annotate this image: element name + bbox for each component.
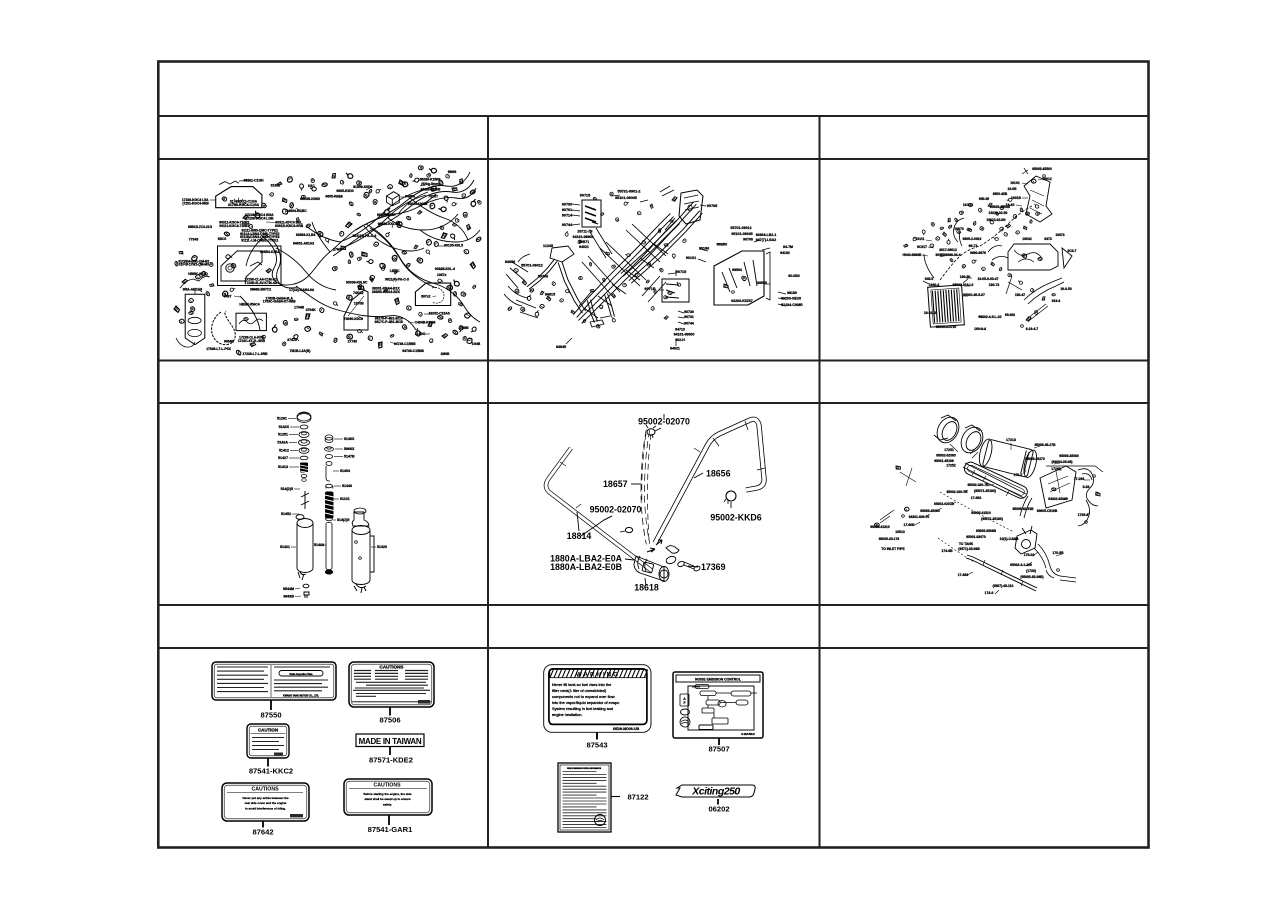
svg-text:2M9B: 2M9B xyxy=(441,352,450,356)
svg-text:HBBK-9H1D: HBBK-9H1D xyxy=(188,272,208,276)
svg-text:948PA: 948PA xyxy=(405,195,416,199)
svg-text:55701-09012: 55701-09012 xyxy=(730,226,751,230)
svg-text:95002-45-5-07: 95002-45-5-07 xyxy=(963,293,985,297)
svg-text:87550: 87550 xyxy=(260,711,281,720)
svg-text:7016T: 7016T xyxy=(428,194,439,198)
svg-text:9605-K0L8T: 9605-K0L8T xyxy=(377,213,397,217)
svg-text:1705-6: 1705-6 xyxy=(1078,513,1089,517)
svg-text:9605-2-0616: 9605-2-0616 xyxy=(963,237,982,241)
svg-text:1901B: 1901B xyxy=(1011,196,1022,200)
svg-text:9843B: 9843B xyxy=(283,595,294,599)
svg-text:90714: 90714 xyxy=(562,214,573,218)
svg-text:System resulting in fuel leaki: System resulting in fuel leaking and xyxy=(552,706,613,711)
svg-text:KWANG YANG MOTOR CO., LTD.: KWANG YANG MOTOR CO., LTD. xyxy=(283,695,319,698)
svg-text:190-47: 190-47 xyxy=(1015,293,1025,297)
svg-text:(7231-KGC4-9RB: (7231-KGC4-9RB xyxy=(182,202,209,206)
svg-text:51420: 51420 xyxy=(377,545,387,549)
svg-text:94021: 94021 xyxy=(579,245,589,249)
svg-text:947(7)-LBA2: 947(7)-LBA2 xyxy=(756,238,776,242)
svg-text:55701-09012: 55701-09012 xyxy=(521,264,543,268)
svg-text:19032: 19032 xyxy=(1022,237,1032,241)
svg-text:19-222: 19-222 xyxy=(963,203,973,207)
svg-text:26711-7B: 26711-7B xyxy=(577,230,593,234)
svg-text:19220-02-50: 19220-02-50 xyxy=(989,211,1008,215)
svg-text:51404: 51404 xyxy=(340,469,350,473)
svg-text:WARNING: WARNING xyxy=(576,671,620,678)
svg-text:1763C-GAB4-KT-9RB: 1763C-GAB4-KT-9RB xyxy=(263,300,297,304)
svg-text:946-5: 946-5 xyxy=(925,277,934,281)
svg-text:C404B-K0M8: C404B-K0M8 xyxy=(415,321,436,325)
svg-text:TO TANK: TO TANK xyxy=(959,542,974,546)
svg-text:1370B: 1370B xyxy=(354,301,365,305)
svg-text:to avoid interference of ridin: to avoid interference of riding. xyxy=(245,806,286,810)
svg-text:Never put any article between: Never put any article between the xyxy=(242,796,288,800)
svg-text:51421: 51421 xyxy=(280,545,290,549)
svg-text:94738-C15BB: 94738-C15BB xyxy=(394,342,416,346)
svg-text:90309-K0L8C: 90309-K0L8C xyxy=(346,280,368,284)
svg-text:1704B: 1704B xyxy=(294,306,305,310)
svg-text:5966X: 5966X xyxy=(344,447,355,451)
svg-text:7M1B-L3A(B): 7M1B-L3A(B) xyxy=(290,349,311,353)
svg-text:174-6B: 174-6B xyxy=(941,549,953,553)
svg-text:90705: 90705 xyxy=(707,204,718,208)
svg-text:95001-63070: 95001-63070 xyxy=(966,535,986,539)
svg-text:5142X: 5142X xyxy=(279,425,290,429)
svg-text:5147B: 5147B xyxy=(344,455,355,459)
svg-text:96-73: 96-73 xyxy=(969,244,978,248)
svg-text:NOISE EMISSION CONTROL: NOISE EMISSION CONTROL xyxy=(695,677,741,681)
svg-text:19111: 19111 xyxy=(915,237,924,241)
svg-text:84601-A61A3: 84601-A61A3 xyxy=(293,242,314,246)
svg-text:87507: 87507 xyxy=(708,745,729,754)
svg-text:17369: 17369 xyxy=(701,562,726,572)
svg-text:514(2)5: 514(2)5 xyxy=(281,487,293,491)
svg-text:90605-C510B: 90605-C510B xyxy=(1037,509,1058,513)
svg-text:90701: 90701 xyxy=(562,208,572,212)
svg-text:19-01-B: 19-01-B xyxy=(924,311,937,315)
svg-text:9690-6876: 9690-6876 xyxy=(970,251,986,255)
svg-text:Never fill tank so fuel rises: Never fill tank so fuel rises into the xyxy=(552,682,611,687)
svg-text:rear side cover and the engine: rear side cover and the engine xyxy=(245,801,287,805)
svg-text:3174B-KGC4-C1GA: 3174B-KGC4-C1GA xyxy=(228,203,260,207)
svg-text:51443: 51443 xyxy=(342,484,352,488)
svg-text:51452: 51452 xyxy=(281,512,291,516)
svg-text:F: F xyxy=(684,701,686,705)
svg-text:87541-KKC2: 87541-KKC2 xyxy=(249,767,293,776)
svg-text:9111L-LM-QMB2-TYPE1: 9111L-LM-QMB2-TYPE1 xyxy=(241,238,278,242)
svg-text:1723C-4T-2L-9RB: 1723C-4T-2L-9RB xyxy=(238,339,266,343)
svg-text:19-05-0-90-47: 19-05-0-90-47 xyxy=(978,277,999,281)
svg-text:90730: 90730 xyxy=(562,203,572,207)
svg-text:Brake Inspection Plate: Brake Inspection Plate xyxy=(290,673,314,676)
svg-text:5142A: 5142A xyxy=(277,441,288,445)
svg-text:51281: 51281 xyxy=(277,417,287,421)
svg-text:87122: 87122 xyxy=(627,793,648,802)
svg-text:94162: 94162 xyxy=(780,251,790,255)
svg-text:06202: 06202 xyxy=(708,805,729,814)
svg-text:17(23)-GAB4-9A: 17(23)-GAB4-9A xyxy=(289,288,315,292)
svg-text:397x2: 397x2 xyxy=(421,295,431,299)
svg-text:190-50: 190-50 xyxy=(960,275,971,279)
svg-text:743T: 743T xyxy=(224,295,233,299)
svg-text:95101-09045: 95101-09045 xyxy=(615,196,637,200)
svg-text:9BC5: 9BC5 xyxy=(218,237,227,241)
svg-text:1880A-LBA2-E0B: 1880A-LBA2-E0B xyxy=(550,562,622,572)
svg-text:94021: 94021 xyxy=(670,347,680,351)
svg-text:51234-CHMR: 51234-CHMR xyxy=(781,303,803,307)
svg-text:636B4-K1BA: 636B4-K1BA xyxy=(260,250,280,254)
svg-text:17-603: 17-603 xyxy=(971,496,982,500)
svg-text:(1730): (1730) xyxy=(1026,569,1036,573)
svg-text:9081B-KBC4-9RB: 9081B-KBC4-9RB xyxy=(275,224,304,228)
svg-text:374Z0: 374Z0 xyxy=(287,338,297,342)
svg-text:CAUTIONS: CAUTIONS xyxy=(373,783,401,789)
svg-text:87642: 87642 xyxy=(252,828,273,837)
svg-text:65002-4-1-200: 65002-4-1-200 xyxy=(1010,563,1032,567)
svg-text:87506: 87506 xyxy=(379,716,400,725)
svg-text:51101: 51101 xyxy=(340,497,350,501)
svg-text:51413: 51413 xyxy=(278,465,288,469)
svg-text:CAUTIONS: CAUTIONS xyxy=(251,787,279,793)
svg-text:9C617: 9C617 xyxy=(917,245,927,249)
svg-text:65002-020-7B: 65002-020-7B xyxy=(946,490,968,494)
svg-text:9811(4)-PA-C-3: 9811(4)-PA-C-3 xyxy=(385,278,409,282)
svg-text:9-19A7BL6: 9-19A7BL6 xyxy=(741,732,755,736)
svg-text:(93004-35-08): (93004-35-08) xyxy=(1052,460,1073,464)
svg-text:CAUTION: CAUTION xyxy=(258,728,278,733)
svg-text:90730: 90730 xyxy=(684,310,694,314)
svg-text:84856: 84856 xyxy=(505,260,515,264)
svg-text:919-4: 919-4 xyxy=(1052,299,1061,303)
svg-text:9011-09888-04-4: 9011-09888-04-4 xyxy=(935,253,960,257)
svg-text:87541-GAR1: 87541-GAR1 xyxy=(368,825,414,834)
svg-text:GE29-MD06-UB: GE29-MD06-UB xyxy=(613,727,640,731)
svg-text:95005-45080: 95005-45080 xyxy=(1059,454,1079,458)
svg-text:87571-KDE2: 87571-KDE2 xyxy=(369,756,413,765)
svg-text:90706: 90706 xyxy=(743,238,753,242)
svg-text:95005-45-27B: 95005-45-27B xyxy=(1034,443,1056,447)
svg-text:51427: 51427 xyxy=(278,456,288,460)
svg-text:95002-020-7B: 95002-020-7B xyxy=(967,483,989,487)
svg-text:94101-08908: 94101-08908 xyxy=(573,235,594,239)
svg-text:94301-630-70: 94301-630-70 xyxy=(909,515,930,519)
svg-text:9071B: 9071B xyxy=(644,287,655,291)
svg-text:31862: 31862 xyxy=(271,183,281,187)
svg-text:3617C-P-4B1-BCB: 3617C-P-4B1-BCB xyxy=(374,320,403,324)
svg-text:27743: 27743 xyxy=(348,339,358,343)
svg-text:34904-KCBC: 34904-KCBC xyxy=(286,209,307,213)
svg-text:90715: 90715 xyxy=(580,194,591,198)
svg-text:95002-02080: 95002-02080 xyxy=(936,454,956,458)
svg-text:94738-C15M8: 94738-C15M8 xyxy=(402,349,424,353)
svg-text:9-19-4-7: 9-19-4-7 xyxy=(1026,327,1039,331)
svg-text:17-60B: 17-60B xyxy=(903,523,915,527)
svg-text:95005-41510: 95005-41510 xyxy=(971,511,991,515)
svg-text:174-0: 174-0 xyxy=(985,591,994,595)
svg-text:9473: 9473 xyxy=(1044,237,1052,241)
svg-text:172-2: 172-2 xyxy=(1014,473,1023,477)
svg-text:55731-0901-2: 55731-0901-2 xyxy=(618,190,641,194)
svg-text:17-264: 17-264 xyxy=(1074,477,1085,481)
svg-text:98180: 98180 xyxy=(787,291,797,295)
svg-text:190-73: 190-73 xyxy=(989,283,1000,287)
svg-text:8544M: 8544M xyxy=(283,587,294,591)
svg-text:9M09: 9M09 xyxy=(448,170,457,174)
svg-text:950-05: 950-05 xyxy=(979,197,989,201)
svg-text:TO INLET PIPE: TO INLET PIPE xyxy=(881,547,905,551)
svg-text:Before starting the engine, th: Before starting the engine, the side xyxy=(364,792,412,796)
svg-text:9664B: 9664B xyxy=(224,340,235,344)
svg-text:19070: 19070 xyxy=(954,227,964,231)
svg-text:19222-02-B0: 19222-02-B0 xyxy=(986,218,1005,222)
svg-text:90731: 90731 xyxy=(684,315,694,319)
svg-text:170-5B: 170-5B xyxy=(1052,551,1064,555)
svg-text:84845: 84845 xyxy=(556,345,566,349)
svg-text:(95071-35180): (95071-35180) xyxy=(981,517,1003,521)
svg-text:17-683: 17-683 xyxy=(958,573,969,577)
svg-text:95002-019-L0: 95002-019-L0 xyxy=(953,283,974,287)
svg-text:77343: 77343 xyxy=(189,238,199,242)
svg-text:90111-KGC4-710B1: 90111-KGC4-710B1 xyxy=(219,224,249,228)
svg-text:95101-09045: 95101-09045 xyxy=(731,232,752,236)
svg-text:18657: 18657 xyxy=(603,479,628,489)
svg-text:95005-3508B: 95005-3508B xyxy=(976,529,997,533)
svg-text:514(2)5: 514(2)5 xyxy=(337,518,349,522)
svg-text:51412: 51412 xyxy=(279,449,289,453)
svg-text:74KC2: 74KC2 xyxy=(353,291,364,295)
svg-text:84815: 84815 xyxy=(545,293,555,297)
svg-text:84308-1130B: 84308-1130B xyxy=(421,188,441,192)
svg-text:90-0B0: 90-0B0 xyxy=(788,274,800,278)
svg-text:3704K: 3704K xyxy=(306,308,317,312)
svg-text:90101: 90101 xyxy=(686,256,696,260)
svg-text:11245: 11245 xyxy=(543,244,553,248)
svg-text:95005-45270: 95005-45270 xyxy=(1025,457,1045,461)
svg-text:95005-45500: 95005-45500 xyxy=(1032,167,1052,171)
svg-text:190-3-4: 190-3-4 xyxy=(974,327,986,331)
svg-text:902-H: 902-H xyxy=(675,338,685,342)
svg-text:90305-K0L-4: 90305-K0L-4 xyxy=(435,267,455,271)
svg-text:9660B-K0B0: 9660B-K0B0 xyxy=(300,197,320,201)
svg-text:98504: 98504 xyxy=(732,268,742,272)
svg-text:51251: 51251 xyxy=(278,433,288,437)
svg-text:1723B-5LAV-KTM-A3: 1723B-5LAV-KTM-A3 xyxy=(245,281,278,285)
svg-text:safety.: safety. xyxy=(383,802,392,806)
svg-text:components not to expand over: components not to expand over flow xyxy=(552,694,615,699)
svg-text:MADE IN TAIWAN: MADE IN TAIWAN xyxy=(359,737,422,746)
svg-text:90304-LB2-1: 90304-LB2-1 xyxy=(756,233,777,237)
svg-text:18656: 18656 xyxy=(706,469,731,479)
svg-text:filler neck(1 liter of unrestr: filler neck(1 liter of unrestricted) xyxy=(552,688,607,693)
svg-text:95005-4550B: 95005-4550B xyxy=(990,205,1011,209)
svg-text:LE-4C: LE-4C xyxy=(390,269,400,273)
svg-text:1725Z: 1725Z xyxy=(946,464,956,468)
svg-text:18618: 18618 xyxy=(634,583,659,593)
svg-text:19012: 19012 xyxy=(1042,177,1052,181)
svg-text:19073: 19073 xyxy=(1055,233,1064,237)
svg-text:3617-09012: 3617-09012 xyxy=(939,248,957,252)
svg-text:(95071-35180): (95071-35180) xyxy=(974,489,996,493)
svg-text:18814: 18814 xyxy=(567,531,592,541)
svg-text:95005-42-51B: 95005-42-51B xyxy=(1012,507,1034,511)
svg-text:17261: 17261 xyxy=(1051,467,1061,471)
svg-text:96105-10065: 96105-10065 xyxy=(408,202,428,206)
svg-text:9500-45B: 9500-45B xyxy=(993,192,1008,196)
svg-text:94101-06000: 94101-06000 xyxy=(674,333,695,337)
svg-text:95005-35-178: 95005-35-178 xyxy=(879,537,900,541)
svg-text:95001-45108: 95001-45108 xyxy=(934,459,954,463)
svg-text:10513: 10513 xyxy=(895,530,905,534)
svg-text:stand shall be swept up to ens: stand shall be swept up to ensure xyxy=(364,797,410,801)
svg-text:95005-3-5720: 95005-3-5720 xyxy=(936,325,957,329)
svg-text:9RA-AM1U9: 9RA-AM1U9 xyxy=(183,287,203,291)
svg-text:90715: 90715 xyxy=(676,270,687,274)
svg-text:86301-C1GH: 86301-C1GH xyxy=(244,179,265,183)
svg-text:H1C: H1C xyxy=(308,184,315,188)
svg-text:1367x: 1367x xyxy=(437,273,447,277)
svg-text:(9571)-35-08B: (9571)-35-08B xyxy=(958,547,980,551)
svg-text:(9507)-45-110: (9507)-45-110 xyxy=(993,584,1014,588)
svg-text:90105-K0L5: 90105-K0L5 xyxy=(444,243,463,247)
svg-text:87543: 87543 xyxy=(586,741,607,750)
svg-text:HBBK-KHC4: HBBK-KHC4 xyxy=(239,302,259,306)
svg-text:H040-9888B: H040-9888B xyxy=(903,253,922,257)
svg-text:27M6: 27M6 xyxy=(333,247,342,251)
svg-text:(95005-35-08B): (95005-35-08B) xyxy=(1020,575,1043,579)
svg-text:9C6-7: 9C6-7 xyxy=(1068,249,1077,253)
svg-text:50280-K15R8: 50280-K15R8 xyxy=(420,177,441,181)
svg-text:into the vapor/liquid separato: into the vapor/liquid separator of evapo xyxy=(552,700,619,705)
svg-text:95002-02070: 95002-02070 xyxy=(590,505,642,515)
svg-text:98565: 98565 xyxy=(757,281,767,285)
svg-text:90250: 90250 xyxy=(717,243,727,247)
svg-text:95002-KKD6: 95002-KKD6 xyxy=(710,513,761,523)
svg-text:Xciting250: Xciting250 xyxy=(691,786,740,798)
svg-text:98B71: 98B71 xyxy=(579,240,589,244)
svg-text:3830B-KBA4-B2X: 3830B-KBA4-B2X xyxy=(372,290,401,294)
svg-text:2M9B: 2M9B xyxy=(460,326,470,330)
svg-text:19101: 19101 xyxy=(1010,181,1020,185)
svg-text:50706: 50706 xyxy=(538,275,548,279)
svg-text:95005-45080: 95005-45080 xyxy=(920,509,940,513)
svg-text:90744: 90744 xyxy=(562,223,573,227)
svg-text:63564-KLB4: 63564-KLB4 xyxy=(296,233,316,237)
svg-text:96005-41310: 96005-41310 xyxy=(870,525,890,529)
svg-text:5146X: 5146X xyxy=(344,437,355,441)
svg-text:9-33: 9-33 xyxy=(1083,485,1090,489)
svg-text:9811(4)-PA-C-3: 9811(4)-PA-C-3 xyxy=(353,234,377,238)
svg-text:83203-K0Z67: 83203-K0Z67 xyxy=(731,299,752,303)
svg-text:17238-L7-L-9RB: 17238-L7-L-9RB xyxy=(243,352,269,356)
svg-text:engine hesitation.: engine hesitation. xyxy=(552,712,583,717)
svg-text:31F-B-17W1-QM-M3: 31F-B-17W1-QM-M3 xyxy=(179,263,209,267)
svg-text:9605-K0D0: 9605-K0D0 xyxy=(336,189,353,193)
svg-text:95-002: 95-002 xyxy=(1005,313,1015,317)
svg-text:178-02: 178-02 xyxy=(1024,553,1035,557)
svg-text:94713: 94713 xyxy=(675,328,685,332)
svg-text:17251: 17251 xyxy=(944,448,954,452)
svg-text:19-0B: 19-0B xyxy=(1008,187,1018,191)
svg-text:1940-3: 1940-3 xyxy=(929,283,940,287)
svg-text:1G4B: 1G4B xyxy=(472,342,481,346)
svg-text:19-0-50: 19-0-50 xyxy=(1060,287,1072,291)
svg-text:90744: 90744 xyxy=(684,322,694,326)
svg-text:17238-KGC4 LGB: 17238-KGC4 LGB xyxy=(245,217,274,221)
svg-text:95002-4-5-L-20: 95002-4-5-L-20 xyxy=(979,315,1002,319)
svg-text:17636-L7-L-P5X: 17636-L7-L-P5X xyxy=(206,347,231,351)
svg-text:94-7M: 94-7M xyxy=(783,245,793,249)
svg-text:17213: 17213 xyxy=(1006,438,1016,442)
svg-text:CAUTIONS: CAUTIONS xyxy=(380,665,404,670)
svg-text:96B1B-ZC3-21G: 96B1B-ZC3-21G xyxy=(188,225,213,229)
svg-text:96416-KKC8T: 96416-KKC8T xyxy=(378,222,401,226)
